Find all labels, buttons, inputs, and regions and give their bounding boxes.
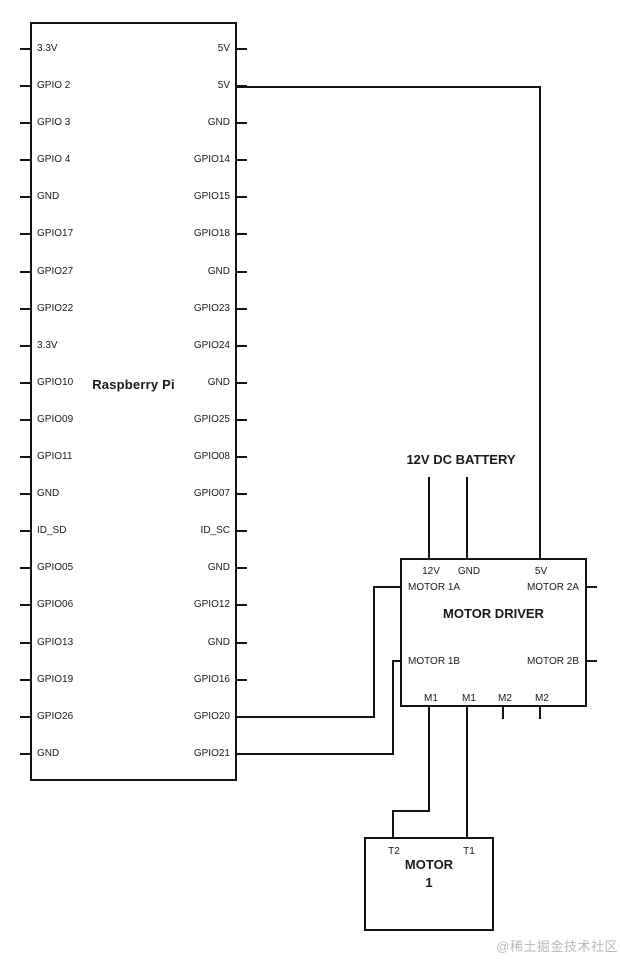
motor-driver-title: MOTOR DRIVER	[402, 606, 585, 622]
pin-tick-left	[20, 642, 30, 644]
pin-tick-left	[20, 456, 30, 458]
pin-tick-left	[20, 233, 30, 235]
pin-tick-right	[237, 233, 247, 235]
pi-pin-row: GPIO05 GND	[37, 562, 230, 574]
pi-pin-label-left: GPIO17	[37, 228, 73, 240]
motor-title: MOTOR 1	[366, 856, 492, 892]
wire-gpio21-horizontal	[237, 753, 394, 755]
driver-pin-m1-b: M1	[462, 693, 476, 705]
pin-tick-left	[20, 419, 30, 421]
pin-tick-right	[237, 382, 247, 384]
pin-tick-right	[237, 271, 247, 273]
driver-pin-motor2a: MOTOR 2A	[527, 582, 579, 594]
driver-pin-motor1a: MOTOR 1A	[408, 582, 460, 594]
wire-motor1a-stub	[373, 586, 402, 588]
pin-tick-right	[237, 604, 247, 606]
driver-pin-m2-a: M2	[498, 693, 512, 705]
pi-pin-label-right: 5V	[218, 80, 230, 92]
pi-pin-label-right: GPIO07	[194, 488, 230, 500]
motor-title-name: MOTOR	[366, 856, 492, 874]
motor-driver-box: 12V GND 5V MOTOR 1A MOTOR 2A MOTOR DRIVE…	[400, 558, 587, 707]
driver-pin-5v: 5V	[535, 566, 547, 578]
pin-tick-left	[20, 530, 30, 532]
pi-pin-label-left: 3.3V	[37, 43, 58, 55]
pi-pin-label-left: 3.3V	[37, 340, 58, 352]
pi-pin-label-left: GND	[37, 748, 59, 760]
pin-tick-left	[20, 604, 30, 606]
pi-pin-label-left: GPIO19	[37, 674, 73, 686]
wire-5v-horizontal	[237, 86, 541, 88]
pi-pin-label-left: GND	[37, 488, 59, 500]
pin-tick-right	[237, 159, 247, 161]
pi-pin-label-right: ID_SC	[201, 525, 230, 537]
pin-tick-left	[20, 85, 30, 87]
pin-tick-left	[20, 345, 30, 347]
pi-pin-row: GPIO 4 GPIO14	[37, 154, 230, 166]
driver-pin-motor1b: MOTOR 1B	[408, 656, 460, 668]
motor-box: T2 T1 MOTOR 1	[364, 837, 494, 931]
pin-tick-right	[237, 530, 247, 532]
tick-m2-left	[502, 707, 504, 719]
pin-tick-right	[237, 345, 247, 347]
pi-pin-label-left: ID_SD	[37, 525, 66, 537]
pin-tick-left	[20, 196, 30, 198]
pi-pin-row: GPIO19 GPIO16	[37, 674, 230, 686]
tick-m2-right	[539, 707, 541, 719]
wire-gpio20-horizontal	[237, 716, 375, 718]
wire-battery-gnd	[466, 477, 468, 558]
pi-pin-label-right: GPIO20	[194, 711, 230, 723]
pi-pin-label-right: GND	[208, 377, 230, 389]
pi-pin-row: 3.3V 5V	[37, 43, 230, 55]
driver-pin-motor2b: MOTOR 2B	[527, 656, 579, 668]
pin-tick-right	[237, 567, 247, 569]
wire-m1-left-horizontal	[392, 810, 430, 812]
pi-pin-label-left: GPIO13	[37, 637, 73, 649]
driver-pin-m2-b: M2	[535, 693, 549, 705]
pin-tick-right	[237, 122, 247, 124]
pi-pin-label-right: GPIO18	[194, 228, 230, 240]
wire-t2-vertical	[392, 810, 394, 837]
driver-pin-12v: 12V	[422, 566, 440, 578]
pi-pin-row: GPIO09 GPIO25	[37, 414, 230, 426]
pi-pin-label-left: GPIO10	[37, 377, 73, 389]
pi-pin-row: GPIO10 GND	[37, 377, 230, 389]
pin-tick-right	[237, 679, 247, 681]
wire-battery-12v	[428, 477, 430, 558]
pi-pin-label-left: GPIO05	[37, 562, 73, 574]
wire-gpio21-vertical	[392, 660, 394, 755]
pin-tick-left	[20, 122, 30, 124]
pi-pin-label-left: GPIO22	[37, 303, 73, 315]
pin-tick-right	[237, 308, 247, 310]
pi-pin-label-left: GND	[37, 191, 59, 203]
pi-pin-label-left: GPIO09	[37, 414, 73, 426]
pi-pin-label-right: GPIO21	[194, 748, 230, 760]
pin-tick-left	[20, 382, 30, 384]
tick-motor2a	[587, 586, 597, 588]
driver-pin-gnd: GND	[458, 566, 480, 578]
wire-gpio20-vertical	[373, 586, 375, 718]
motor-title-number: 1	[366, 874, 492, 892]
pin-tick-left	[20, 753, 30, 755]
driver-pin-m1-a: M1	[424, 693, 438, 705]
pin-tick-left	[20, 159, 30, 161]
pi-pin-label-right: GPIO23	[194, 303, 230, 315]
raspberry-pi-box: Raspberry Pi 3.3V 5V GPIO 2 5V GPIO 3 GN…	[30, 22, 237, 781]
pin-tick-left	[20, 679, 30, 681]
pin-tick-left	[20, 493, 30, 495]
pi-pin-label-left: GPIO 2	[37, 80, 70, 92]
wire-5v-vertical	[539, 86, 541, 558]
watermark-text: @稀土掘金技术社区	[496, 939, 618, 955]
pi-pin-row: GPIO06 GPIO12	[37, 599, 230, 611]
pi-pin-label-left: GPIO 4	[37, 154, 70, 166]
battery-label: 12V DC BATTERY	[361, 452, 561, 468]
wiring-diagram: Raspberry Pi 3.3V 5V GPIO 2 5V GPIO 3 GN…	[0, 0, 620, 964]
pi-pin-label-right: GND	[208, 266, 230, 278]
pi-pin-row: GPIO13 GND	[37, 637, 230, 649]
pi-pin-label-left: GPIO06	[37, 599, 73, 611]
pi-pin-label-right: GPIO25	[194, 414, 230, 426]
pi-pin-label-left: GPIO11	[37, 451, 72, 463]
pin-tick-left	[20, 567, 30, 569]
tick-motor2b	[587, 660, 597, 662]
pi-pin-row: GPIO 2 5V	[37, 80, 230, 92]
pin-tick-left	[20, 308, 30, 310]
pin-tick-right	[237, 642, 247, 644]
pi-pin-label-right: GPIO14	[194, 154, 230, 166]
pi-pin-label-left: GPIO27	[37, 266, 73, 278]
pin-tick-right	[237, 493, 247, 495]
pi-pin-row: GPIO17 GPIO18	[37, 228, 230, 240]
pi-pin-label-right: GPIO16	[194, 674, 230, 686]
pi-pin-row: GND GPIO15	[37, 191, 230, 203]
pi-pin-row: ID_SD ID_SC	[37, 525, 230, 537]
pin-tick-right	[237, 196, 247, 198]
pi-pin-label-left: GPIO 3	[37, 117, 70, 129]
pin-tick-left	[20, 271, 30, 273]
pi-pin-label-right: GPIO12	[194, 599, 230, 611]
pi-pin-row: 3.3V GPIO24	[37, 340, 230, 352]
pi-pin-row: GND GPIO21	[37, 748, 230, 760]
pin-tick-right	[237, 48, 247, 50]
wire-m1-right-vertical	[466, 707, 468, 837]
pi-pin-row: GPIO27 GND	[37, 266, 230, 278]
pin-tick-left	[20, 48, 30, 50]
pi-pin-label-right: GND	[208, 637, 230, 649]
pi-pin-row: GPIO 3 GND	[37, 117, 230, 129]
pi-pin-label-right: GPIO24	[194, 340, 230, 352]
pin-tick-right	[237, 456, 247, 458]
pi-pin-label-right: 5V	[218, 43, 230, 55]
pi-pin-label-right: GPIO15	[194, 191, 230, 203]
pin-tick-right	[237, 419, 247, 421]
wire-m1-left-vertical	[428, 707, 430, 812]
pi-pin-label-right: GND	[208, 117, 230, 129]
pi-pin-row: GPIO11 GPIO08	[37, 451, 230, 463]
pi-pin-row: GND GPIO07	[37, 488, 230, 500]
pi-pin-label-right: GND	[208, 562, 230, 574]
pi-pin-label-right: GPIO08	[194, 451, 230, 463]
pi-pin-row: GPIO26 GPIO20	[37, 711, 230, 723]
pi-pin-row: GPIO22 GPIO23	[37, 303, 230, 315]
pi-pin-label-left: GPIO26	[37, 711, 73, 723]
pin-tick-left	[20, 716, 30, 718]
